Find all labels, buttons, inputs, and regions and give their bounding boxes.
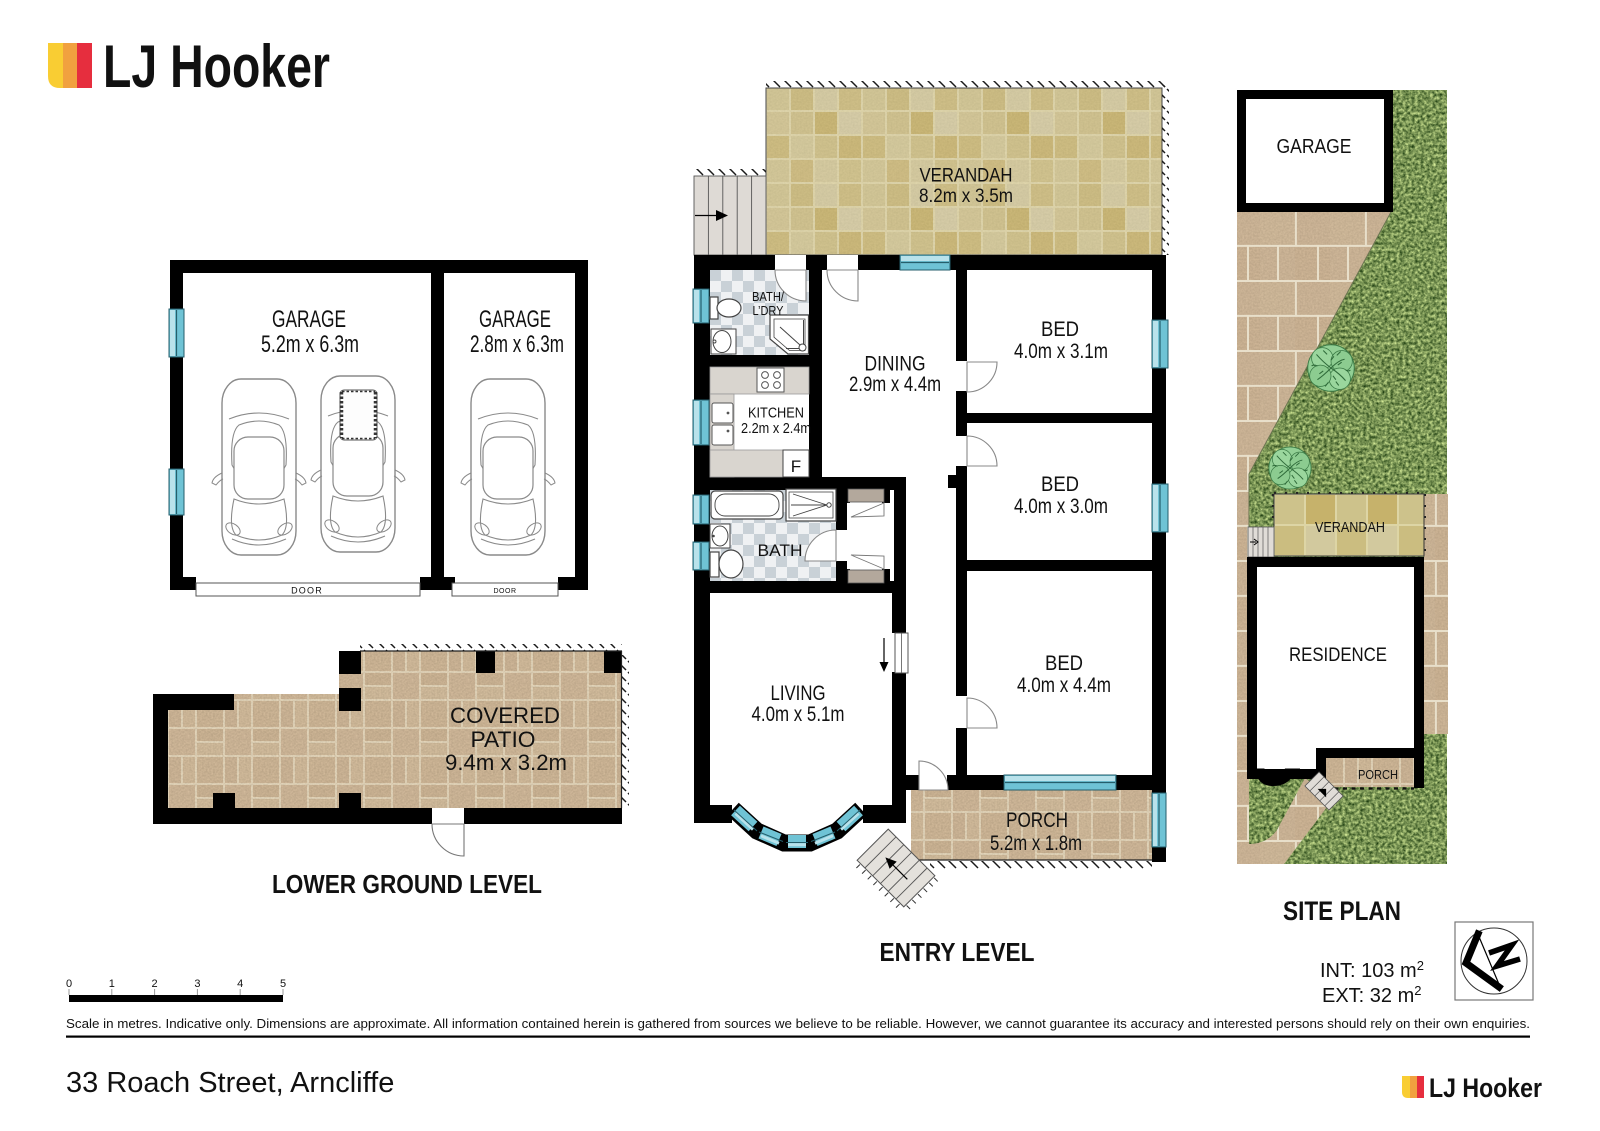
svg-text:4.0m x 3.0m: 4.0m x 3.0m [1014,494,1108,518]
svg-text:GARAGE: GARAGE [479,306,551,333]
svg-text:2.2m x 2.4m: 2.2m x 2.4m [741,421,811,437]
svg-text:8.2m x 3.5m: 8.2m x 3.5m [919,186,1013,207]
svg-text:2.9m x 4.4m: 2.9m x 4.4m [849,372,941,396]
svg-text:L’DRY: L’DRY [753,303,784,318]
svg-text:KITCHEN: KITCHEN [748,406,804,422]
svg-text:BATH: BATH [758,541,803,560]
svg-text:PORCH: PORCH [1358,767,1398,782]
svg-text:33 Roach Street, Arncliffe: 33 Roach Street, Arncliffe [66,1067,394,1099]
svg-text:5.2m x 1.8m: 5.2m x 1.8m [990,831,1082,855]
svg-text:BED: BED [1041,317,1079,341]
svg-text:BATH/: BATH/ [752,289,784,304]
svg-text:9.4m x 3.2m: 9.4m x 3.2m [445,750,567,775]
svg-text:ENTRY LEVEL: ENTRY LEVEL [880,937,1035,967]
svg-text:F: F [791,457,801,476]
svg-text:4.0m x 3.1m: 4.0m x 3.1m [1014,339,1108,363]
svg-text:GARAGE: GARAGE [272,306,346,333]
svg-text:INT: 103 m2: INT: 103 m2 [1320,958,1424,982]
svg-text:4.0m x 5.1m: 4.0m x 5.1m [752,702,845,726]
svg-text:LJ Hooker: LJ Hooker [103,33,330,100]
svg-text:LOWER GROUND LEVEL: LOWER GROUND LEVEL [272,869,542,899]
svg-text:5.2m x 6.3m: 5.2m x 6.3m [261,331,359,358]
svg-text:4: 4 [237,978,243,990]
svg-text:BED: BED [1041,472,1079,496]
svg-text:2.8m x 6.3m: 2.8m x 6.3m [470,331,564,358]
svg-text:VERANDAH: VERANDAH [1315,519,1385,536]
svg-text:Scale in metres. Indicative on: Scale in metres. Indicative only. Dimens… [66,1016,1530,1031]
svg-text:BED: BED [1045,651,1083,675]
svg-text:COVERED: COVERED [450,703,560,728]
svg-text:0: 0 [66,978,72,990]
svg-text:5: 5 [280,978,286,990]
svg-text:VERANDAH: VERANDAH [920,166,1013,187]
svg-text:GARAGE: GARAGE [1277,136,1352,158]
svg-text:RESIDENCE: RESIDENCE [1289,645,1387,666]
svg-text:DOOR: DOOR [291,586,323,596]
svg-text:EXT: 32 m2: EXT: 32 m2 [1322,983,1422,1007]
svg-text:3: 3 [194,978,200,990]
svg-text:PATIO: PATIO [471,727,536,752]
svg-text:1: 1 [109,978,115,990]
svg-text:4.0m x 4.4m: 4.0m x 4.4m [1017,673,1111,697]
svg-text:PORCH: PORCH [1006,808,1068,832]
svg-text:DOOR: DOOR [494,588,517,595]
svg-text:LJ Hooker: LJ Hooker [1429,1073,1542,1103]
svg-text:SITE PLAN: SITE PLAN [1283,896,1401,926]
svg-text:2: 2 [152,978,158,990]
